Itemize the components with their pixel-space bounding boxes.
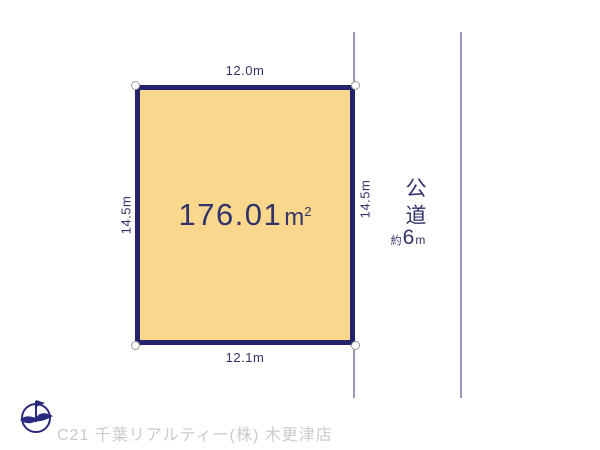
company-watermark: C21 千葉リアルティー(株) 木更津店 bbox=[57, 421, 333, 445]
road-type-label: 公道 bbox=[399, 177, 429, 231]
corner-marker-bottom-right bbox=[351, 341, 360, 350]
road-width-value: 6 bbox=[403, 226, 415, 250]
north-arrow-compass-icon bbox=[16, 398, 56, 438]
road-width-prefix: 約 bbox=[391, 232, 402, 248]
road-width-label: 約 6 m bbox=[391, 226, 426, 250]
corner-marker-top-right bbox=[351, 81, 360, 90]
corner-marker-bottom-left bbox=[131, 341, 140, 350]
dimension-bottom: 12.1m bbox=[226, 350, 265, 365]
road-boundary-line-far bbox=[460, 32, 462, 398]
corner-marker-top-left bbox=[131, 81, 140, 90]
plot-area-value: 176.01 bbox=[178, 197, 282, 233]
land-plot-shape: 176.01 m2 bbox=[135, 85, 355, 345]
plot-area-unit: m2 bbox=[284, 204, 311, 232]
dimension-left: 14.5m bbox=[119, 196, 134, 235]
plot-area-label: 176.01 m2 bbox=[178, 197, 311, 233]
dimension-top: 12.0m bbox=[226, 63, 265, 78]
land-plot-diagram: 176.01 m2 12.0m 12.1m 14.5m 14.5m 公道 約 6… bbox=[0, 0, 600, 450]
dimension-right: 14.5m bbox=[358, 180, 373, 219]
road-width-unit: m bbox=[415, 233, 425, 247]
